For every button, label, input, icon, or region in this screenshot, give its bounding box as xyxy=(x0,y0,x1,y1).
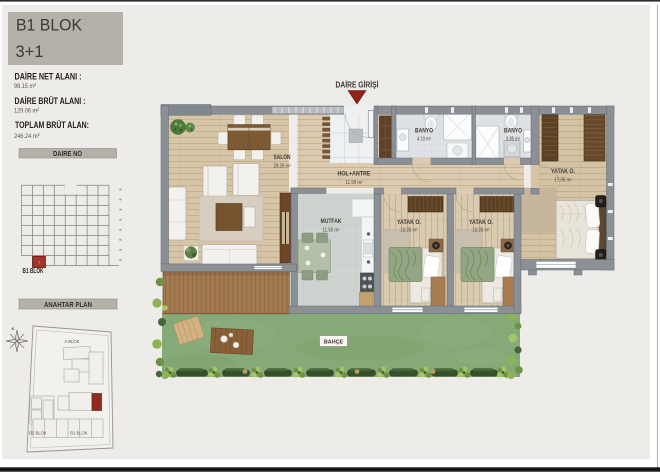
svg-text:YATAK O.: YATAK O. xyxy=(551,168,575,175)
svg-text:MUTFAK: MUTFAK xyxy=(321,218,342,225)
svg-text:DAIRE NO: DAIRE NO xyxy=(53,151,82,158)
svg-text:B1 BLOK: B1 BLOK xyxy=(70,431,88,436)
svg-text:17.05 m²: 17.05 m² xyxy=(555,178,572,184)
svg-text:4.10 m²: 4.10 m² xyxy=(417,137,431,143)
svg-text:246.24 m²: 246.24 m² xyxy=(14,133,40,140)
svg-text:YATAK O.: YATAK O. xyxy=(469,219,493,226)
svg-text:98.15 m²: 98.15 m² xyxy=(14,83,37,90)
svg-text:K: K xyxy=(12,326,15,331)
svg-text:BANYO: BANYO xyxy=(504,128,522,135)
svg-text:SALON: SALON xyxy=(274,154,291,161)
svg-text:HOL+ANTRE: HOL+ANTRE xyxy=(338,171,371,178)
svg-text:A BLOK: A BLOK xyxy=(65,339,80,344)
svg-text:129.06 m²: 129.06 m² xyxy=(14,108,40,115)
svg-text:DAİRE NET ALANI :: DAİRE NET ALANI : xyxy=(15,72,82,82)
svg-text:YATAK O.: YATAK O. xyxy=(397,219,421,226)
svg-text:29.25 m²: 29.25 m² xyxy=(274,164,291,170)
svg-text:BANYO: BANYO xyxy=(415,128,433,135)
svg-text:11.90 m²: 11.90 m² xyxy=(346,180,363,186)
svg-text:DAİRE GİRİŞİ: DAİRE GİRİŞİ xyxy=(336,81,379,90)
svg-text:ANAHTAR PLAN: ANAHTAR PLAN xyxy=(44,302,92,309)
svg-text:DAİRE BRÜT ALANI :: DAİRE BRÜT ALANI : xyxy=(15,96,86,106)
svg-text:B1 BLOK: B1 BLOK xyxy=(23,268,44,275)
svg-text:BAHÇE: BAHÇE xyxy=(324,339,344,345)
svg-text:3+1: 3+1 xyxy=(16,42,44,61)
svg-text:3.85 m²: 3.85 m² xyxy=(506,137,520,143)
svg-text:10.25 m²: 10.25 m² xyxy=(401,228,418,234)
svg-text:11.50 m²: 11.50 m² xyxy=(323,228,340,234)
svg-text:B2 BLOK: B2 BLOK xyxy=(29,431,47,436)
svg-text:TOPLAM BRÜT ALAN:: TOPLAM BRÜT ALAN: xyxy=(15,120,89,130)
svg-text:10.25 m²: 10.25 m² xyxy=(473,228,490,234)
svg-text:B1 BLOK: B1 BLOK xyxy=(16,16,83,35)
